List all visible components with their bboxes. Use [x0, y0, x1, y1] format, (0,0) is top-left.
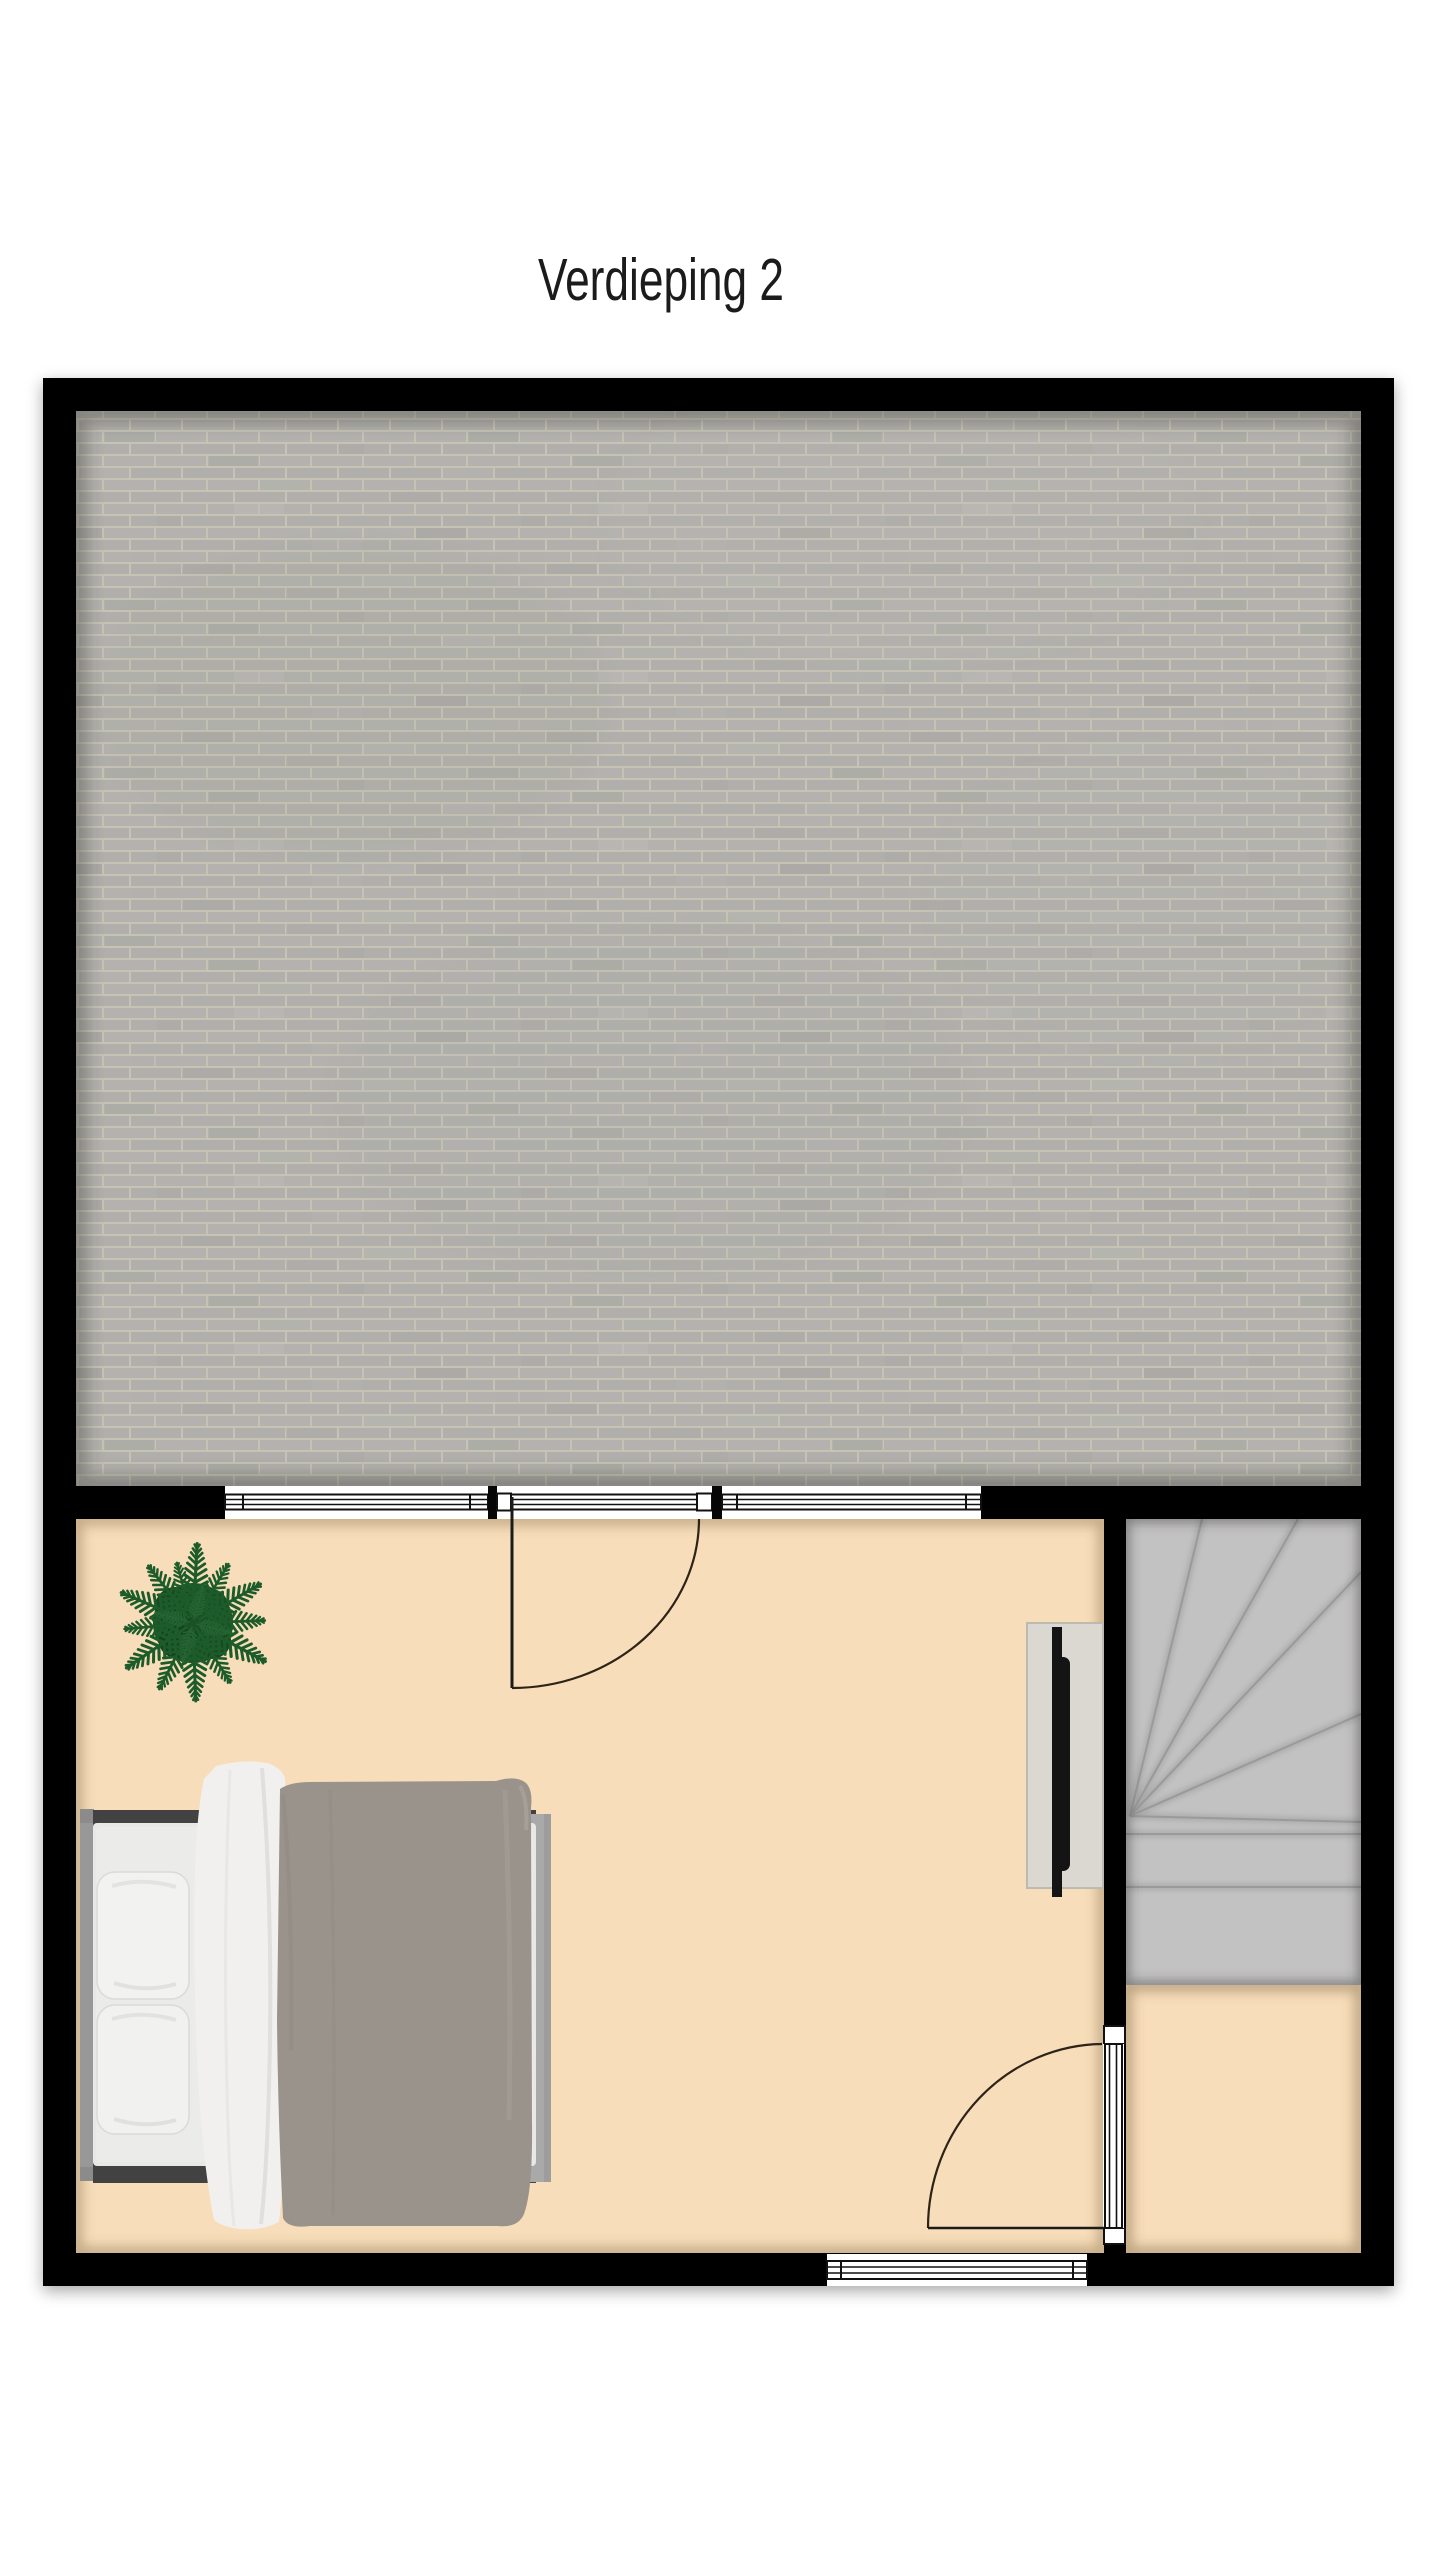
svg-text:Verdieping 2: Verdieping 2 — [538, 247, 784, 313]
